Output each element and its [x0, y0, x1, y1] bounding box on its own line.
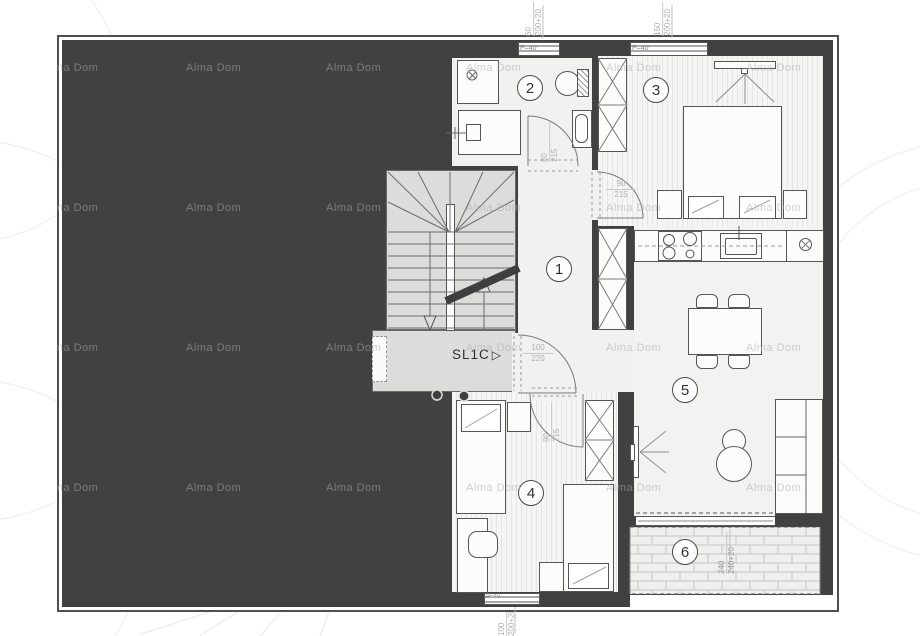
room-number: 2	[526, 80, 534, 97]
bedroom4-door-opening	[528, 386, 582, 400]
dim-bath-door: 80 215	[540, 122, 559, 162]
sill-label: P=40	[520, 45, 537, 52]
room-label-bathroom: 2	[517, 75, 543, 101]
dim-bedroom3-door: 90 215	[606, 179, 636, 200]
room-label-balcony: 6	[672, 539, 698, 565]
toilet-cistern	[577, 69, 589, 97]
floor-plan-page: SL1C▷	[0, 0, 920, 636]
room-number: 6	[681, 544, 689, 561]
stair-direction-arrow: ▷	[492, 348, 502, 362]
kitchen-counter-divider	[786, 230, 787, 262]
shower-tray	[457, 60, 499, 104]
boiler-symbol	[799, 238, 812, 251]
nightstand	[657, 190, 682, 219]
chair	[696, 355, 718, 369]
dim-height: 220	[531, 354, 544, 363]
dim-height: 215	[552, 402, 561, 442]
chair	[728, 355, 750, 369]
sill-label: P=40	[632, 45, 649, 52]
tv-bedroom3-mount	[741, 68, 748, 74]
dim-height: 215	[550, 122, 559, 162]
room-label-hall: 1	[546, 256, 572, 282]
washbasin-unit-inner	[466, 124, 481, 141]
room-number: 3	[652, 82, 660, 99]
pillow	[688, 196, 724, 219]
coffee-table-large	[716, 446, 752, 482]
balcony-glazing	[636, 516, 775, 526]
dim-window-bath: 60 200+20	[524, 2, 543, 36]
pillow	[461, 404, 501, 432]
dim-window-bedroom3: 150 200+20	[653, 2, 672, 36]
pillow	[739, 196, 776, 219]
stair-label-text: SL1C	[452, 347, 490, 362]
sill-label: P=40	[486, 594, 500, 600]
room-number: 4	[527, 485, 535, 502]
room-number: 5	[681, 382, 689, 399]
hand-basin-inner	[575, 114, 588, 143]
under-balcony-margin	[630, 595, 835, 607]
dim-entrance-door: 100 220	[523, 343, 553, 364]
sofa	[775, 399, 823, 514]
nightstand	[507, 402, 531, 432]
dim-height: 200+20	[534, 2, 543, 36]
chair	[696, 294, 718, 308]
room-label-living: 5	[672, 377, 698, 403]
wardrobe-bedroom4	[585, 400, 614, 481]
room-label-bedroom4: 4	[518, 480, 544, 506]
dim-bedroom4-door: 90 215	[542, 402, 561, 442]
dim-width: 60	[524, 2, 534, 36]
wardrobe-hall	[598, 228, 627, 330]
dim-width: 80	[540, 122, 550, 162]
stair-side-door	[372, 336, 387, 382]
dining-table	[688, 308, 762, 355]
dim-height: 240+20	[727, 532, 736, 574]
stair-label: SL1C▷	[452, 347, 502, 362]
dim-width: 240	[717, 532, 727, 574]
pillow	[568, 563, 609, 589]
dim-height: 215	[614, 190, 627, 199]
stove	[658, 231, 702, 261]
tv-living-mount	[630, 444, 635, 461]
hall-living-opening	[592, 330, 634, 392]
dim-balcony: 240 240+20	[717, 532, 736, 574]
nightstand	[539, 562, 564, 592]
kitchen-sink-inner	[725, 238, 757, 255]
dim-width: 100	[523, 343, 553, 354]
nightstand	[783, 190, 807, 219]
dim-width: 150	[653, 2, 663, 36]
desk-chair	[468, 531, 498, 558]
bedroom3-door-opening	[591, 170, 601, 220]
dim-width: 100	[497, 612, 507, 636]
chair	[728, 294, 750, 308]
dim-height: 200+20	[507, 612, 516, 636]
room-label-bedroom3: 3	[643, 77, 669, 103]
room-number: 1	[555, 261, 563, 278]
dim-window-bedroom4: 100 200+20	[497, 612, 516, 636]
wardrobe-bedroom3	[598, 58, 627, 152]
dim-height: 200+20	[663, 2, 672, 36]
entrance-door-opening	[512, 333, 522, 393]
dim-width: 90	[542, 402, 552, 442]
dim-width: 90	[606, 179, 636, 190]
stair-railing	[446, 204, 455, 331]
